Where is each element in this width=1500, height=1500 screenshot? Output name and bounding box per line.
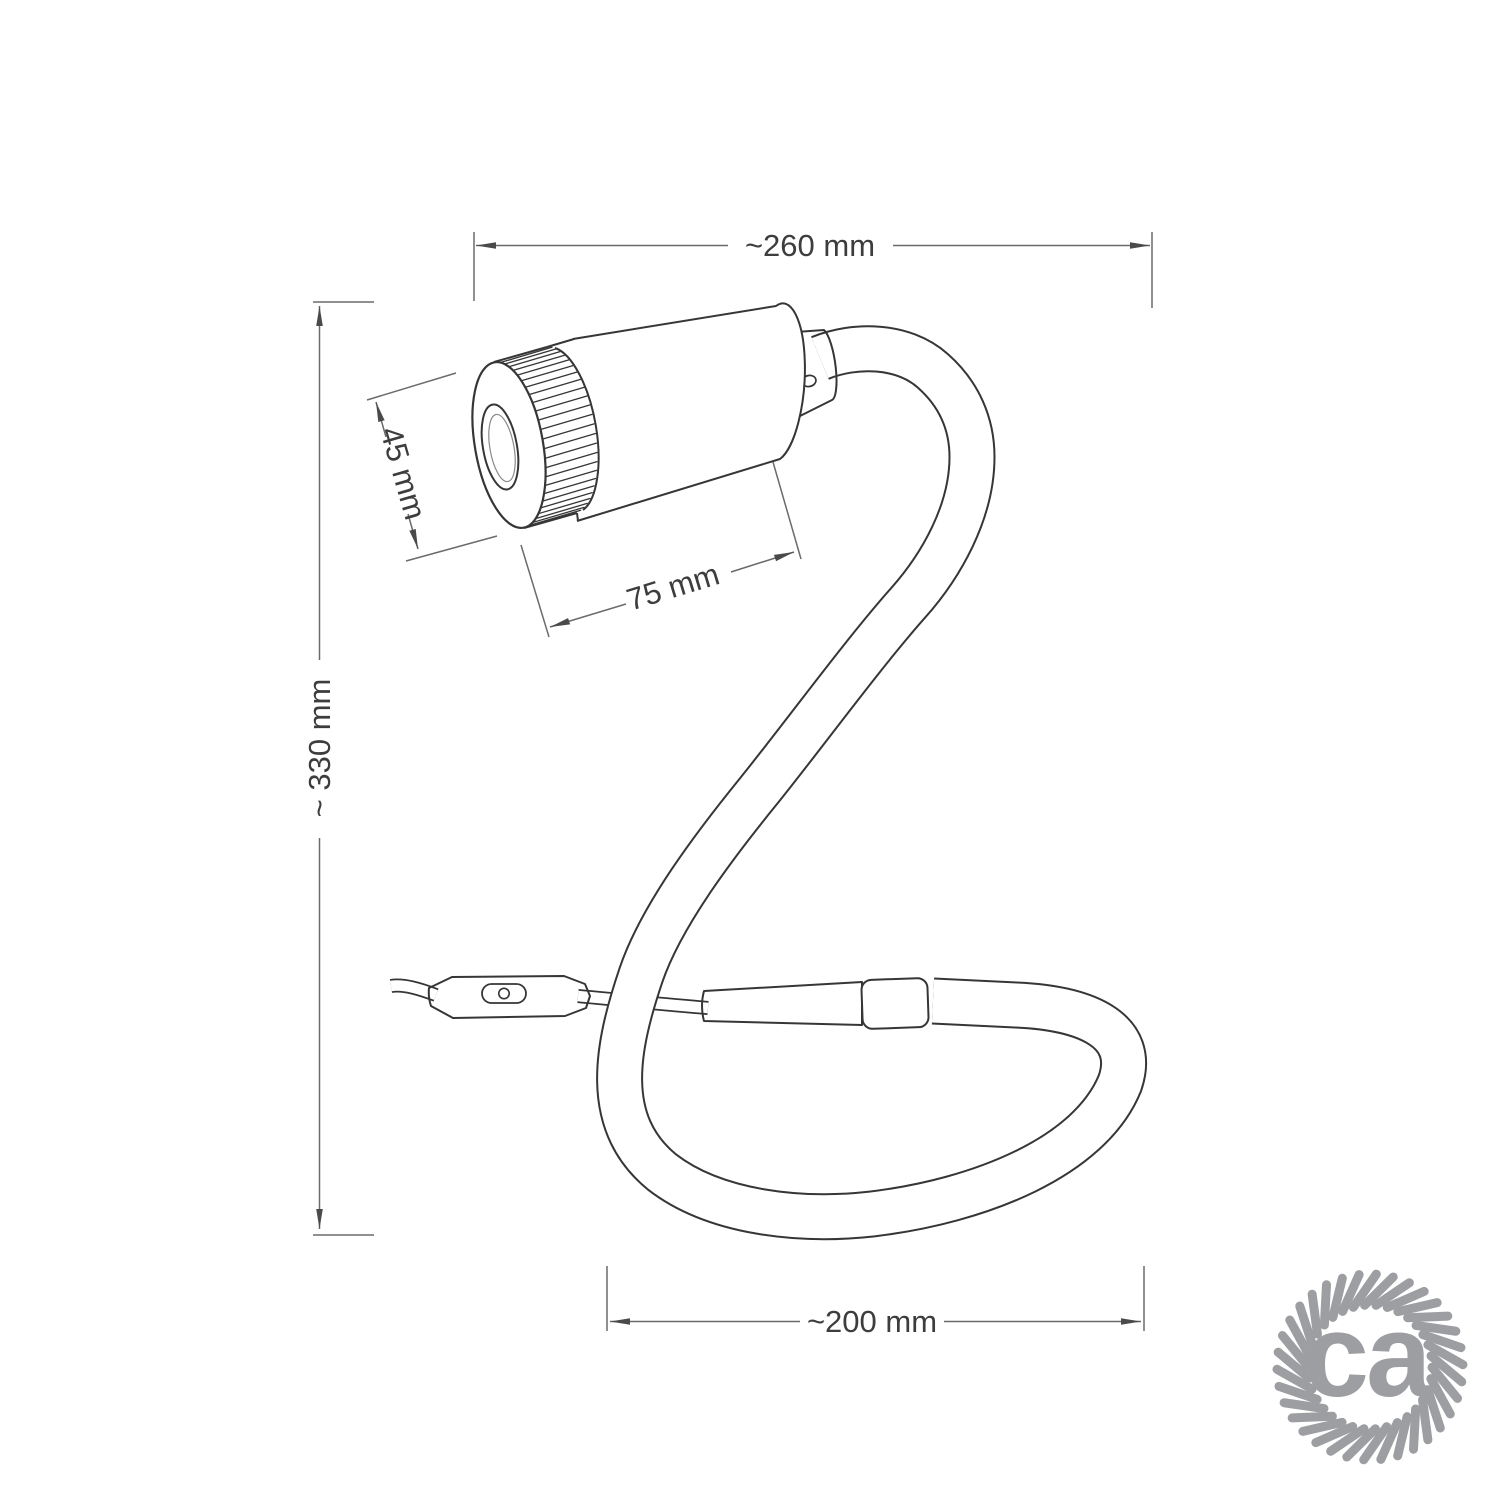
tube-end-sleeve <box>861 978 929 1029</box>
dimension-base-width: ~200 mm <box>607 1266 1144 1339</box>
strain-relief <box>702 978 929 1029</box>
dim-label-left-height: ~ 330 mm <box>302 679 337 818</box>
lamp-head <box>461 303 837 533</box>
dim-label-base-width: ~200 mm <box>807 1304 937 1339</box>
gooseneck-lamp-technical-drawing: ~260 mm ~ 330 mm 45 mm 75 mm ~200 mm ca <box>0 0 1500 1500</box>
dimension-top-width: ~260 mm <box>474 228 1152 308</box>
product-dimension-diagram: ~260 mm ~ 330 mm 45 mm 75 mm ~200 mm ca <box>0 0 1500 1500</box>
brand-logo: ca <box>1277 1274 1463 1460</box>
spotlight-body <box>573 303 805 521</box>
brand-logo-text: ca <box>1303 1290 1433 1422</box>
dimension-left-height: ~ 330 mm <box>302 302 374 1235</box>
dim-label-top-width: ~260 mm <box>745 228 875 263</box>
dim-label-lens-diameter: 45 mm <box>373 423 433 524</box>
dim-label-head-length: 75 mm <box>623 556 724 617</box>
inline-switch <box>429 976 590 1018</box>
